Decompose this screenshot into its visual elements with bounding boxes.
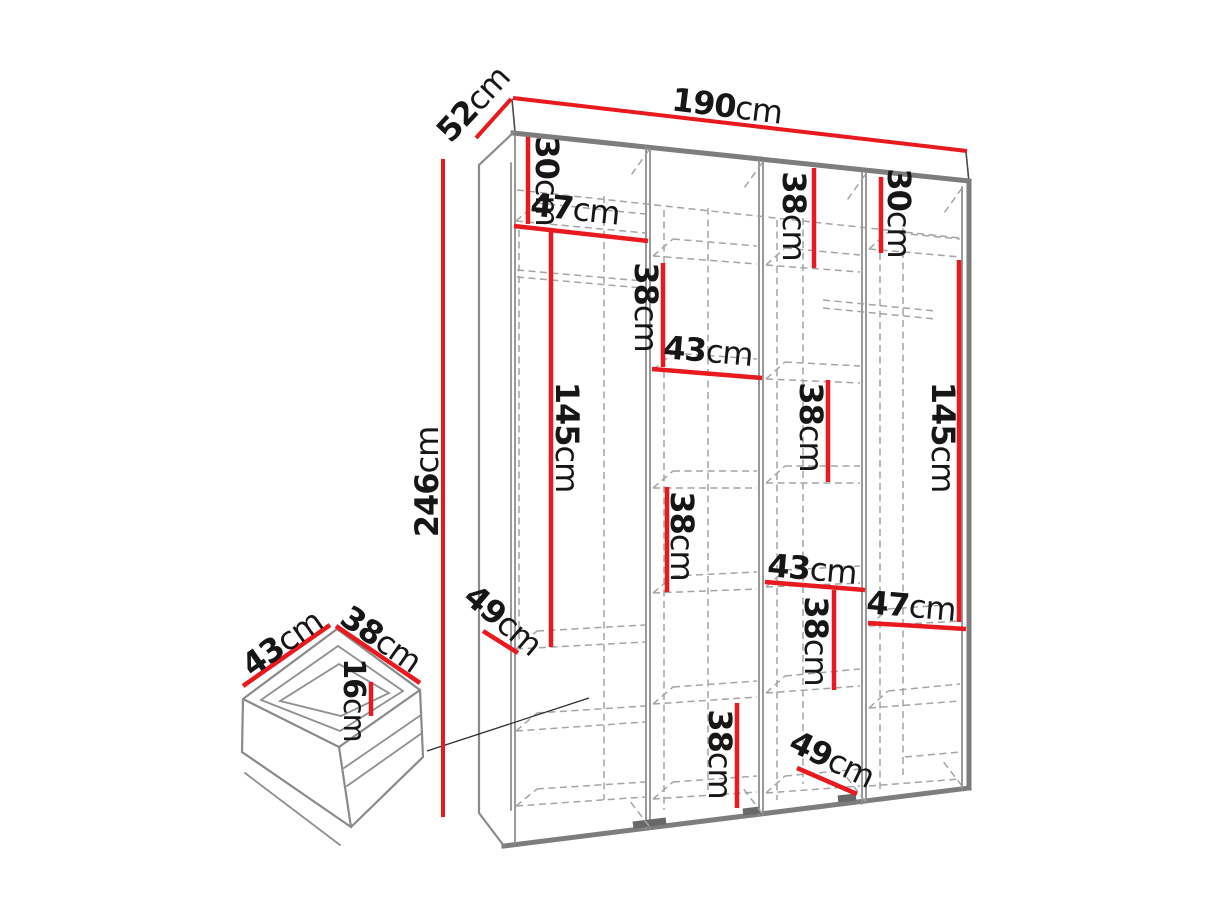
base-pads — [633, 797, 856, 825]
label-col3-upper-38: 38cm — [792, 382, 830, 471]
label-col1-hanging-145: 145cm — [548, 382, 586, 493]
divider-1 — [646, 147, 650, 829]
label-col2-upper-38: 38cm — [627, 262, 665, 351]
label-col4-width-47: 47cm — [865, 583, 957, 629]
wardrobe-dimension-diagram: 52cm 190cm 246cm 30cm 47cm 38cm 43cm 145… — [0, 0, 1214, 911]
divider-2 — [759, 160, 763, 816]
left-panel-bottom-edge — [479, 813, 504, 846]
label-height-246: 246cm — [408, 427, 446, 538]
left-panel-top-edge — [479, 132, 514, 165]
label-col2-width-43: 43cm — [662, 328, 754, 374]
label-col4-hanging-145: 145cm — [924, 382, 962, 493]
top-panel-left-edge — [512, 99, 515, 132]
label-col2-middle-38: 38cm — [663, 491, 701, 580]
drawer-pointer-line — [427, 698, 589, 751]
top-panel-right-edge — [966, 152, 969, 182]
label-drawer-height-16: 16cm — [337, 658, 372, 741]
label-col1-depth-49: 49cm — [457, 577, 550, 664]
diagram-canvas: 52cm 190cm 246cm 30cm 47cm 38cm 43cm 145… — [0, 0, 1214, 911]
label-col3-width-43: 43cm — [766, 546, 858, 592]
label-col3-lower-38: 38cm — [797, 596, 835, 685]
label-width-190: 190cm — [670, 80, 784, 131]
label-col2-bottom-38: 38cm — [701, 709, 739, 798]
divider-3 — [862, 172, 866, 804]
label-col3-top-38: 38cm — [775, 171, 813, 260]
col4-shelves — [823, 232, 960, 786]
label-col4-top-30: 30cm — [880, 168, 918, 257]
col3-shelves — [766, 248, 860, 793]
